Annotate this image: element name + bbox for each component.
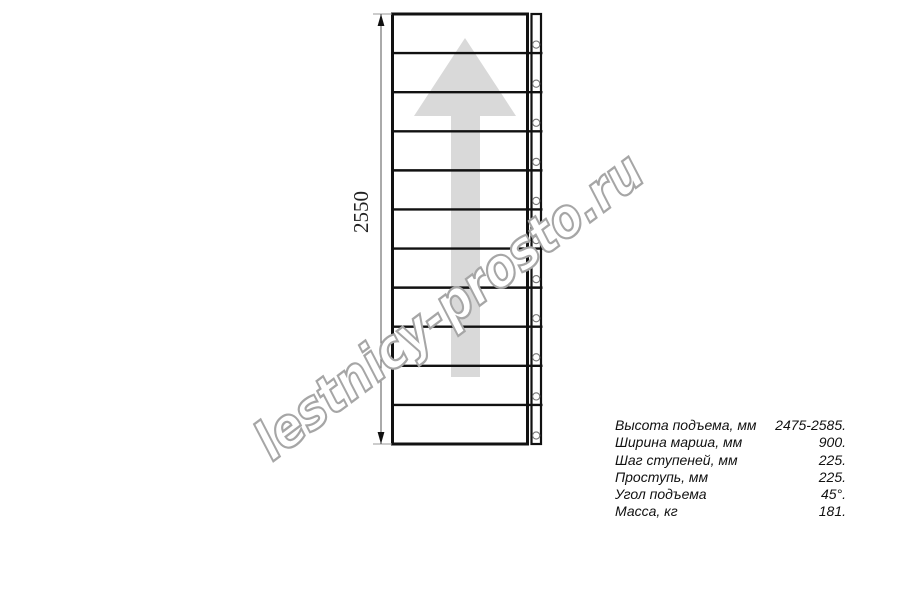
- spec-row-height: Высота подъема, мм 2475-2585.: [615, 417, 846, 434]
- fastener-hole: [533, 315, 540, 322]
- fastener-hole: [533, 393, 540, 400]
- spec-value: 900.: [819, 434, 846, 451]
- spec-label: Ширина марша, мм: [615, 434, 742, 451]
- stair-plan-canvas: 2550 lestnicy-prosto.ru Высота подъема, …: [0, 0, 900, 600]
- spec-row-width: Ширина марша, мм 900.: [615, 434, 846, 451]
- fastener-hole: [533, 354, 540, 361]
- spec-label: Угол подъема: [615, 486, 707, 503]
- dimension-label: 2550: [349, 191, 373, 233]
- spec-label: Высота подъема, мм: [615, 417, 757, 434]
- spec-row-tread: Проступь, мм 225.: [615, 469, 846, 486]
- spec-value: 225.: [819, 452, 846, 469]
- fastener-hole: [533, 158, 540, 165]
- watermark: lestnicy-prosto.ru: [242, 139, 655, 472]
- spec-value: 225.: [819, 469, 846, 486]
- spec-row-mass: Масса, кг 181.: [615, 503, 846, 520]
- spec-value: 45°.: [821, 486, 846, 503]
- spec-label: Масса, кг: [615, 503, 678, 520]
- fastener-hole: [533, 80, 540, 87]
- spec-label: Проступь, мм: [615, 469, 708, 486]
- fastener-hole: [533, 41, 540, 48]
- fastener-hole: [533, 119, 540, 126]
- spec-value: 181.: [819, 503, 846, 520]
- dimension-arrowhead-bottom: [378, 432, 385, 444]
- spec-value: 2475-2585.: [775, 417, 846, 434]
- fastener-hole: [533, 432, 540, 439]
- spec-row-angle: Угол подъема 45°.: [615, 486, 846, 503]
- spec-table: Высота подъема, мм 2475-2585. Ширина мар…: [615, 417, 846, 521]
- dimension-arrowhead-top: [378, 14, 385, 26]
- spec-label: Шаг ступеней, мм: [615, 452, 738, 469]
- spec-row-step-pitch: Шаг ступеней, мм 225.: [615, 452, 846, 469]
